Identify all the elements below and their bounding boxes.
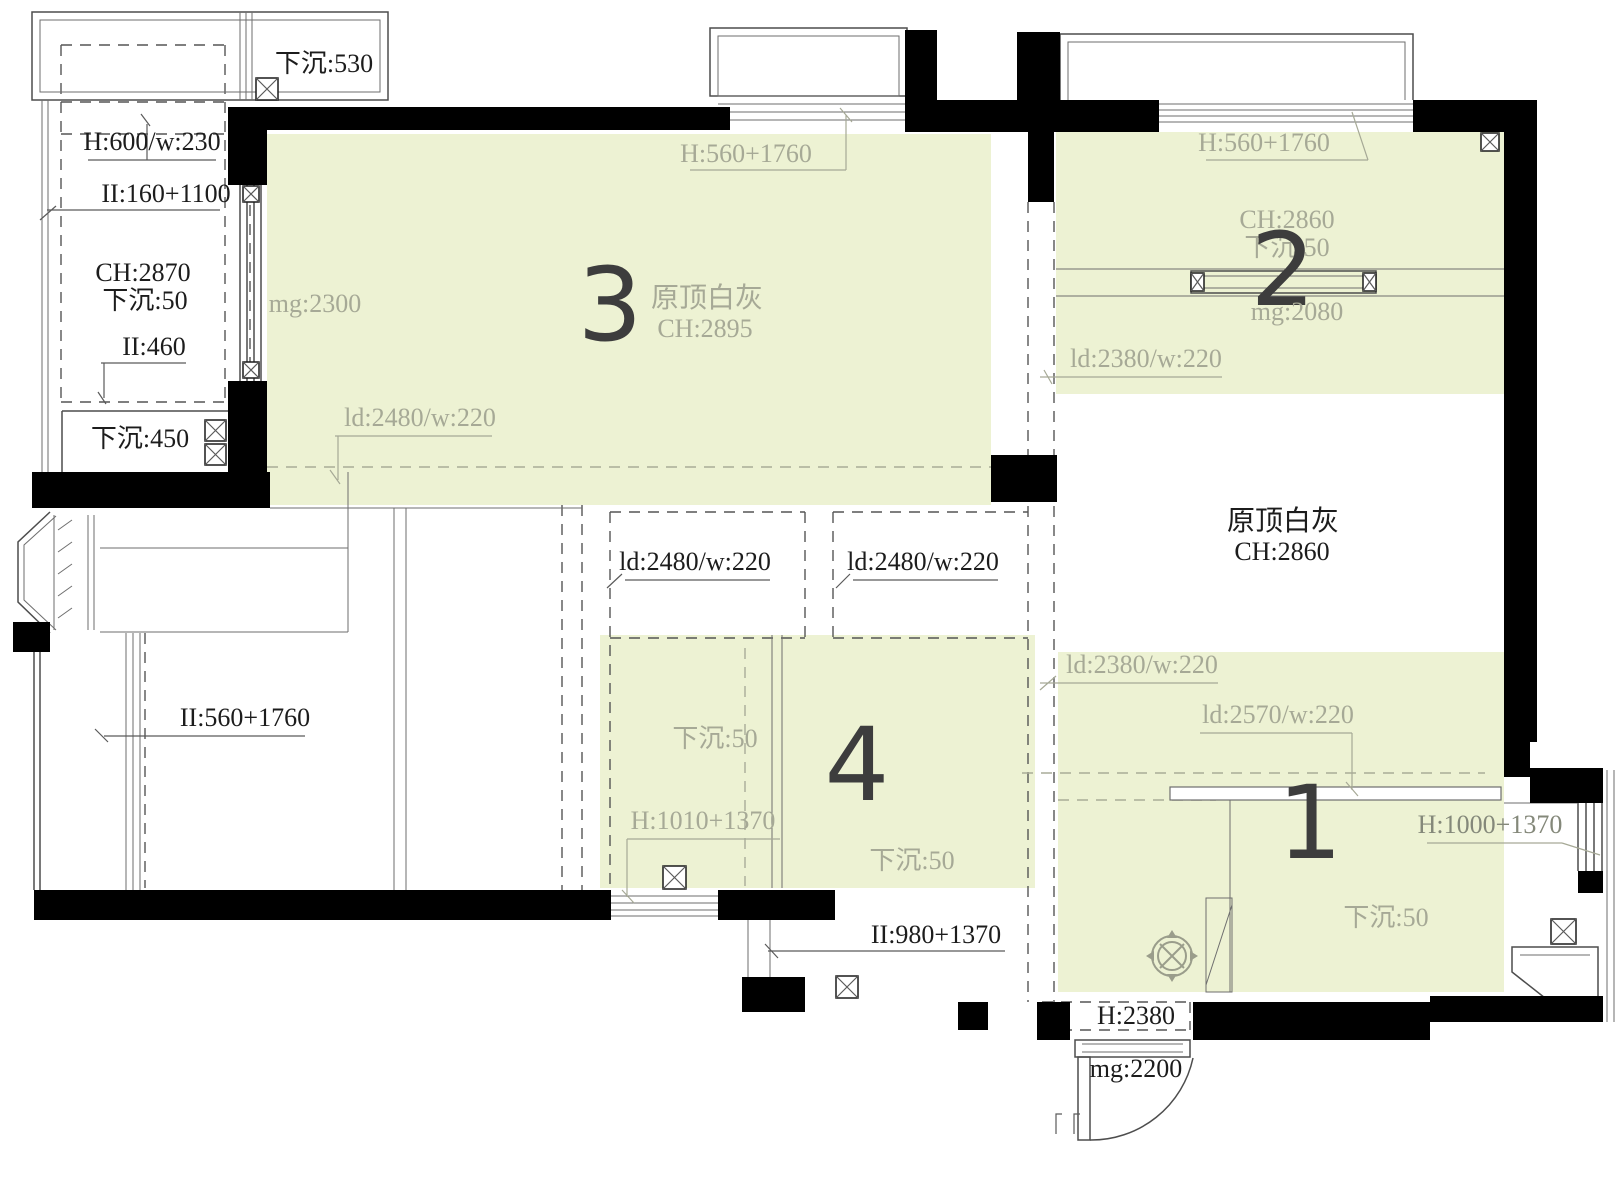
hatch-icon <box>1191 273 1204 291</box>
label-z2-ld: ld:2380/w:220 <box>1070 344 1222 373</box>
label-entry-door-height: H:2380 <box>1097 1001 1175 1030</box>
hatch-icon <box>1481 133 1499 151</box>
label-z1-ld-a: ld:2380/w:220 <box>1066 650 1218 679</box>
label-z4-sink-right: 下沉:50 <box>869 846 954 875</box>
label-dining-finish: 原顶白灰 <box>1227 505 1339 537</box>
label-utility-door: II:460 <box>122 332 186 361</box>
hatch-icon <box>205 444 226 465</box>
label-utility-sink2: 下沉:450 <box>91 424 189 453</box>
floor-plan-canvas: 下沉:530 H:600/w:230 II:160+1100 CH:2870 下… <box>0 0 1624 1184</box>
label-balcony-top-sink: 下沉:530 <box>275 49 373 78</box>
label-z3-finish: 原顶白灰 <box>651 282 763 314</box>
hatch-icon <box>243 362 259 378</box>
label-z3-window-top: H:560+1760 <box>680 139 812 168</box>
hatch-icon <box>256 78 278 100</box>
label-z4-door-right: II:980+1370 <box>871 920 1001 949</box>
label-z1-sink: 下沉:50 <box>1343 903 1428 932</box>
label-z4-window-left: H:1010+1370 <box>631 806 776 835</box>
hatch-icon <box>836 976 858 998</box>
room-3-number: 3 <box>578 246 643 365</box>
label-balcony-left-window: II:560+1760 <box>180 703 310 732</box>
label-z3-ld: ld:2480/w:220 <box>344 403 496 432</box>
label-z1-window: H:1000+1370 <box>1418 810 1563 839</box>
label-utility-beam: H:600/w:230 <box>83 127 220 156</box>
label-z3-mg: mg:2300 <box>269 289 361 318</box>
floor-plan: 下沉:530 H:600/w:230 II:160+1100 CH:2870 下… <box>0 0 1624 1184</box>
label-utility-ch: CH:2870 <box>95 258 190 287</box>
room-4-number: 4 <box>825 706 890 825</box>
door-hardware-icon <box>1056 1114 1080 1134</box>
label-corridor-ld-right: ld:2480/w:220 <box>847 547 999 576</box>
label-z4-sink-left: 下沉:50 <box>672 724 757 753</box>
hatch-icon <box>205 420 226 441</box>
label-utility-window: II:160+1100 <box>101 179 230 208</box>
label-z1-ld-b: ld:2570/w:220 <box>1202 700 1354 729</box>
hatch-icon <box>243 186 259 202</box>
label-z3-ch: CH:2895 <box>657 314 752 343</box>
label-corridor-ld-left: ld:2480/w:220 <box>619 547 771 576</box>
label-entry-mg: mg:2200 <box>1090 1054 1182 1083</box>
zone-4-area <box>600 635 1035 888</box>
room-1-number: 1 <box>1278 764 1343 883</box>
hatch-icon <box>1363 273 1376 291</box>
label-z2-window-top: H:560+1760 <box>1198 128 1330 157</box>
label-z2-mg: mg:2080 <box>1251 297 1343 326</box>
label-utility-sink: 下沉:50 <box>102 286 187 315</box>
hatch-icon <box>663 866 686 889</box>
hatch-icon <box>1551 919 1576 944</box>
label-dining-ch: CH:2860 <box>1234 537 1329 566</box>
